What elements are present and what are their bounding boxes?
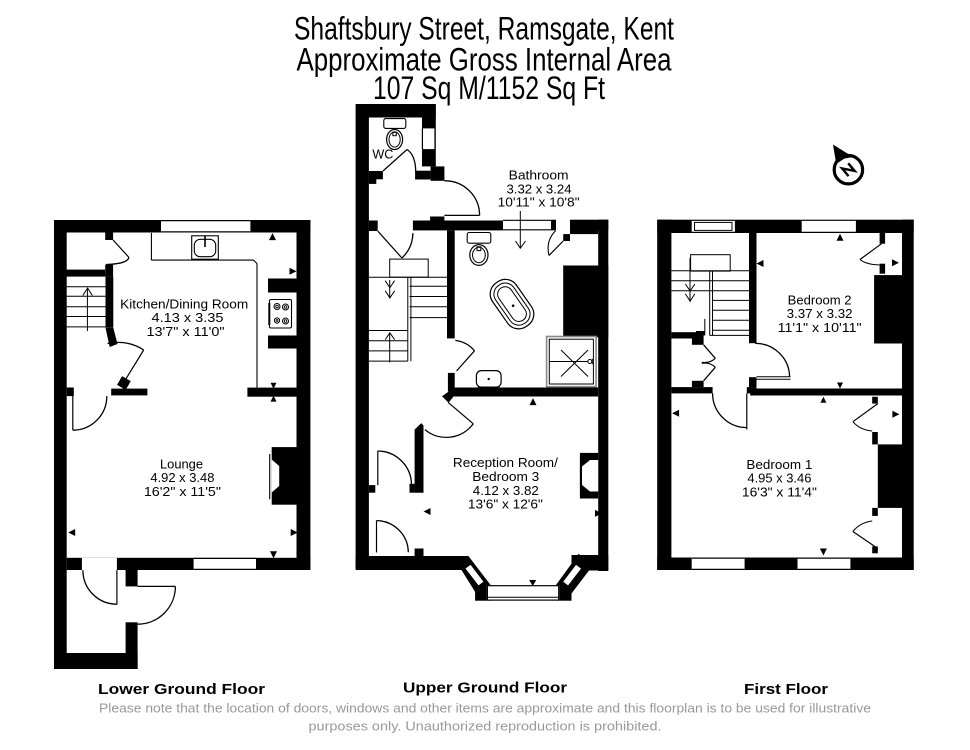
svg-text:WC: WC — [372, 147, 393, 162]
svg-text:10'11" x 10'8": 10'11" x 10'8" — [498, 196, 580, 210]
svg-text:Reception Room/: Reception Room/ — [453, 456, 559, 470]
svg-text:First Floor: First Floor — [744, 682, 828, 698]
svg-text:Bedroom 1: Bedroom 1 — [746, 458, 812, 472]
svg-text:Bedroom 2: Bedroom 2 — [788, 293, 852, 307]
svg-text:Lounge: Lounge — [160, 457, 203, 471]
svg-text:4.95 x 3.46: 4.95 x 3.46 — [747, 472, 811, 486]
svg-text:Bedroom 3: Bedroom 3 — [472, 470, 539, 484]
svg-text:13'6" x 12'6": 13'6" x 12'6" — [468, 498, 543, 512]
svg-text:16'2" x 11'5": 16'2" x 11'5" — [144, 485, 221, 499]
svg-text:3.37 x 3.32: 3.37 x 3.32 — [787, 307, 853, 321]
svg-text:4.13 x 3.35: 4.13 x 3.35 — [152, 311, 224, 325]
svg-text:16'3" x 11'4": 16'3" x 11'4" — [742, 485, 817, 499]
svg-text:13'7" x 11'0": 13'7" x 11'0" — [147, 325, 225, 339]
svg-text:107 Sq M/1152 Sq Ft: 107 Sq M/1152 Sq Ft — [373, 70, 605, 106]
svg-text:4.12 x 3.82: 4.12 x 3.82 — [473, 484, 539, 498]
svg-text:Kitchen/Dining Room: Kitchen/Dining Room — [120, 297, 248, 311]
svg-text:3.32 x 3.24: 3.32 x 3.24 — [507, 182, 572, 196]
svg-text:Please note that the location: Please note that the location of doors, … — [99, 702, 871, 716]
svg-text:Upper Ground Floor: Upper Ground Floor — [403, 681, 567, 697]
svg-text:Lower Ground Floor: Lower Ground Floor — [98, 682, 265, 698]
svg-text:11'1" x 10'11": 11'1" x 10'11" — [778, 321, 862, 335]
svg-text:4.92 x 3.48: 4.92 x 3.48 — [150, 471, 214, 485]
svg-text:Bathroom: Bathroom — [509, 168, 569, 182]
svg-text:purposes only. Unauthorized re: purposes only. Unauthorized reproduction… — [309, 720, 662, 734]
